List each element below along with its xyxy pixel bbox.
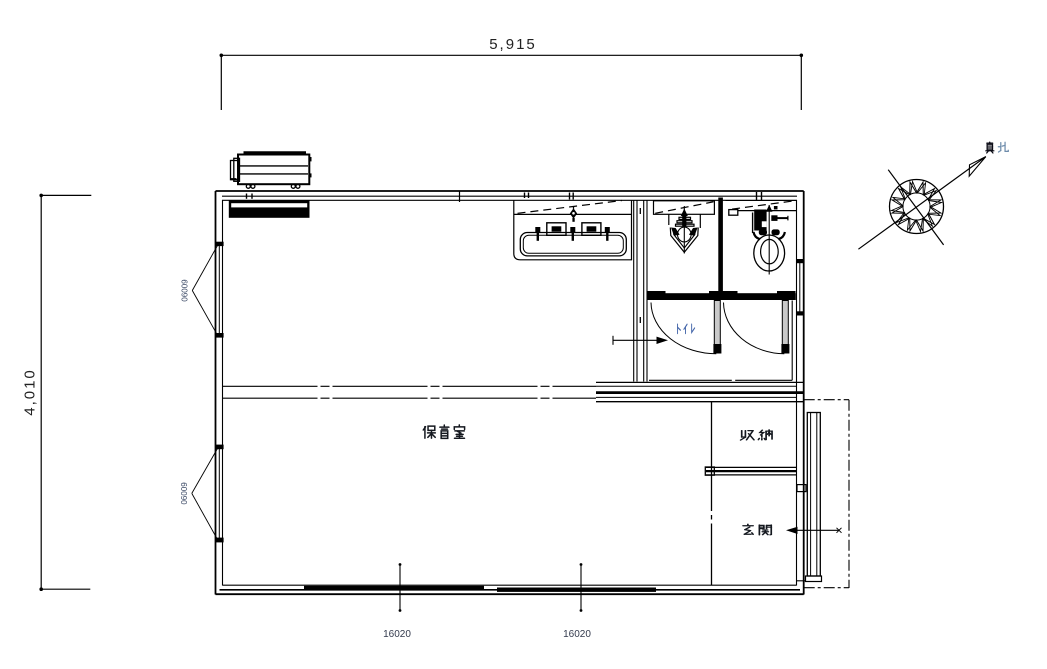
svg-text:16020: 16020	[563, 629, 591, 640]
svg-text:06009: 06009	[181, 279, 190, 302]
svg-text:16020: 16020	[383, 629, 411, 640]
svg-text:5,915: 5,915	[489, 36, 537, 53]
svg-text:4,010: 4,010	[22, 368, 39, 416]
svg-text:06009: 06009	[180, 482, 189, 505]
